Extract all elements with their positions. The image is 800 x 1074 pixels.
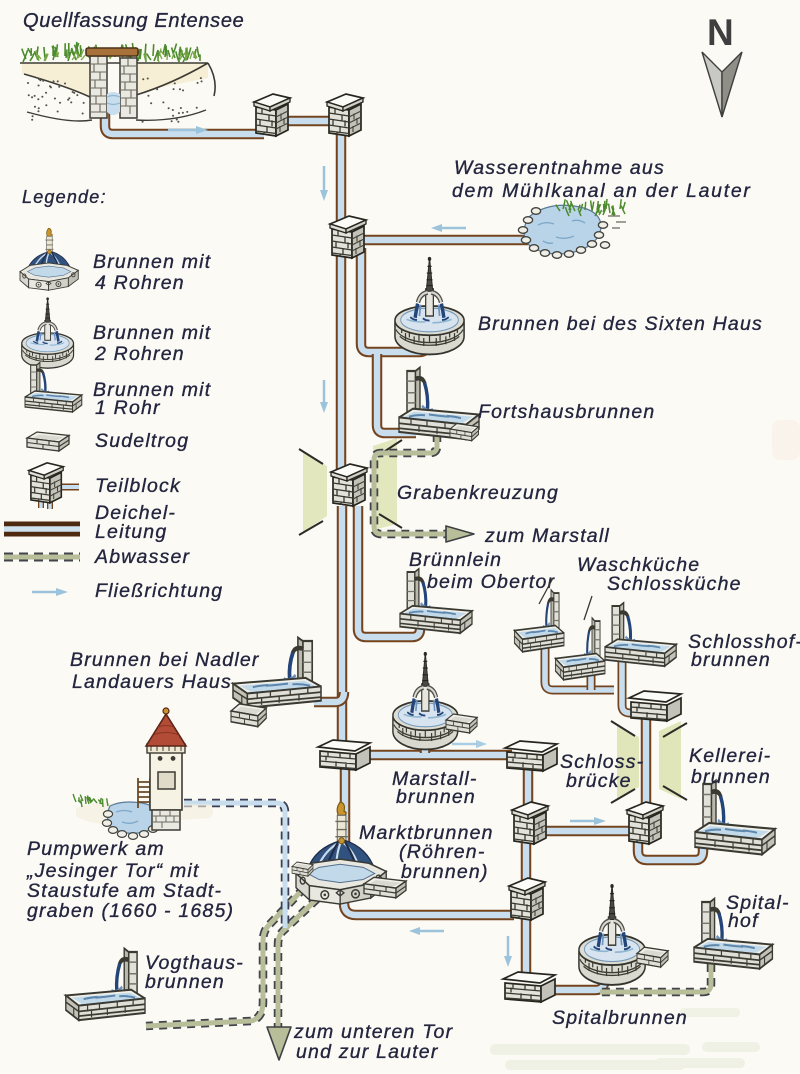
svg-text:brücke: brücke [566,770,632,792]
svg-text:graben (1660 - 1685): graben (1660 - 1685) [27,900,234,922]
svg-text:Wasserentnahme aus: Wasserentnahme aus [454,157,665,179]
svg-text:Fließrichtung: Fließrichtung [95,580,223,602]
svg-text:Abwasser: Abwasser [94,546,191,568]
svg-text:Legende:: Legende: [22,187,107,207]
svg-text:Brunnen bei des Sixten Haus: Brunnen bei des Sixten Haus [478,313,763,335]
svg-text:brunnen: brunnen [691,649,771,671]
svg-text:brunnen: brunnen [145,971,225,993]
svg-text:brunnen: brunnen [691,766,771,788]
svg-text:2 Rohren: 2 Rohren [94,343,185,365]
svg-text:4 Rohren: 4 Rohren [95,272,185,294]
svg-text:zum unteren Tor: zum unteren Tor [293,1021,454,1043]
svg-text:Brunnen mit: Brunnen mit [93,322,212,344]
svg-text:Sudeltrog: Sudeltrog [95,430,189,452]
svg-text:brunnen): brunnen) [401,861,489,883]
svg-text:Spitalbrunnen: Spitalbrunnen [552,1007,688,1029]
svg-text:Staustufe am Stadt-: Staustufe am Stadt- [27,880,222,902]
svg-text:Teilblock: Teilblock [95,475,181,497]
svg-text:Fortshausbrunnen: Fortshausbrunnen [478,401,655,423]
svg-text:Kellerei-: Kellerei- [689,745,771,767]
svg-text:Grabenkreuzung: Grabenkreuzung [397,482,559,504]
svg-text:Brunnen mit: Brunnen mit [93,251,212,273]
svg-text:Brunnen bei Nadler: Brunnen bei Nadler [70,649,260,671]
svg-text:Pumpwerk am: Pumpwerk am [27,838,165,860]
svg-text:N: N [707,12,734,53]
svg-text:hof: hof [728,910,760,932]
svg-text:1 Rohr: 1 Rohr [95,397,161,419]
svg-text:Landauers Haus: Landauers Haus [72,671,232,693]
svg-text:Brünnlein: Brünnlein [409,549,502,571]
svg-text:dem Mühlkanal an der Lauter: dem Mühlkanal an der Lauter [452,180,752,202]
svg-text:brunnen: brunnen [396,786,476,808]
svg-text:zum Marstall: zum Marstall [484,525,610,547]
svg-text:und zur Lauter: und zur Lauter [296,1041,439,1063]
svg-text:beim Obertor: beim Obertor [427,571,555,593]
svg-text:Schlossküche: Schlossküche [607,573,742,595]
svg-text:„Jesinger Tor“ mit: „Jesinger Tor“ mit [26,860,200,882]
svg-text:Leitung: Leitung [95,521,167,543]
svg-text:Quellfassung Entensee: Quellfassung Entensee [23,10,245,32]
svg-text:(Röhren-: (Röhren- [399,841,486,863]
